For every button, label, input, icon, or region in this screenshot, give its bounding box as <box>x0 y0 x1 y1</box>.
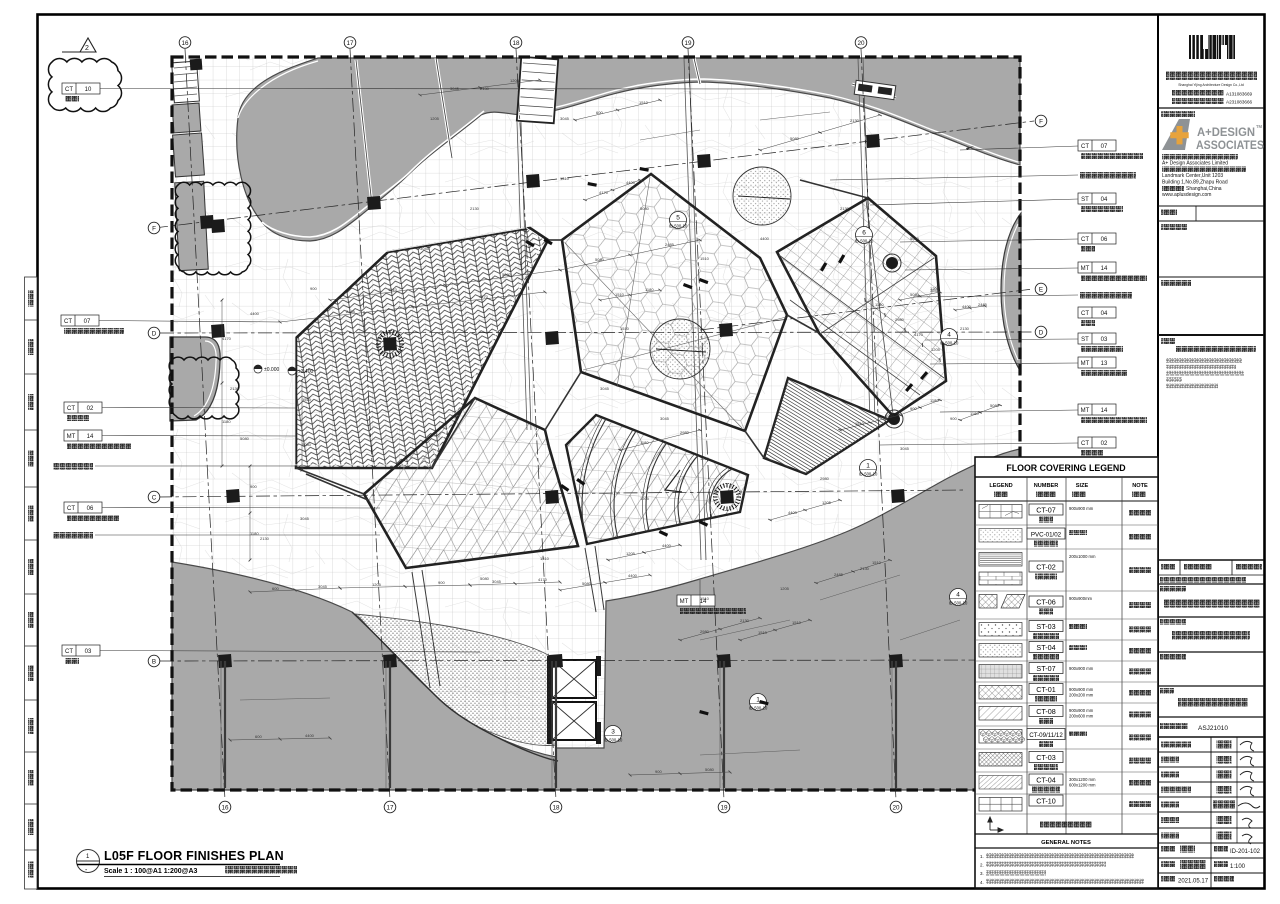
svg-text:CT: CT <box>67 506 75 512</box>
svg-text:CT-01: CT-01 <box>1036 685 1056 694</box>
svg-text:600x1200 mm: 600x1200 mm <box>1069 783 1096 788</box>
svg-text:07: 07 <box>84 319 91 325</box>
svg-text:1180: 1180 <box>222 419 231 424</box>
svg-text:D: D <box>1039 329 1044 336</box>
svg-text:4400: 4400 <box>305 733 315 738</box>
svg-text:16: 16 <box>181 40 189 47</box>
svg-text:1510: 1510 <box>615 292 625 297</box>
svg-text:4400: 4400 <box>788 510 798 515</box>
svg-text:900x900 mm: 900x900 mm <box>1069 708 1094 713</box>
svg-text:900: 900 <box>250 484 257 489</box>
svg-text:2130: 2130 <box>960 326 970 331</box>
svg-text:3045: 3045 <box>420 246 430 251</box>
svg-text:CT: CT <box>65 649 73 655</box>
svg-text:A+ Design Associates Limited: A+ Design Associates Limited <box>1162 161 1228 167</box>
svg-text:4170: 4170 <box>538 577 548 582</box>
svg-text:5080: 5080 <box>502 272 512 277</box>
svg-text:1180: 1180 <box>640 440 649 445</box>
svg-text:3045: 3045 <box>450 86 460 91</box>
svg-text:B: B <box>152 658 156 665</box>
svg-text:2485: 2485 <box>834 572 844 577</box>
svg-text:900x900 mm: 900x900 mm <box>1069 666 1094 671</box>
svg-text:D: D <box>152 330 157 337</box>
svg-text:13: 13 <box>1101 361 1108 367</box>
svg-text:900x900mm: 900x900mm <box>1069 596 1093 601</box>
svg-text:900x900 mm: 900x900 mm <box>1069 506 1094 511</box>
svg-text:1510: 1510 <box>872 560 882 565</box>
svg-text:900x900 mm: 900x900 mm <box>1069 687 1094 692</box>
svg-text:1510: 1510 <box>302 397 312 402</box>
svg-text:3045: 3045 <box>660 416 670 421</box>
svg-text:5080: 5080 <box>480 576 490 581</box>
svg-text:2485: 2485 <box>665 242 675 247</box>
svg-text:3045: 3045 <box>900 446 910 451</box>
svg-text:GENERAL NOTES: GENERAL NOTES <box>1041 840 1091 846</box>
svg-text:5080: 5080 <box>595 257 605 262</box>
svg-text:ID-500-10: ID-500-10 <box>749 706 768 711</box>
svg-text:1205: 1205 <box>510 78 520 83</box>
svg-text:2130: 2130 <box>480 86 490 91</box>
svg-text:900: 900 <box>950 416 957 421</box>
svg-text:1.: 1. <box>980 854 984 859</box>
svg-text:03: 03 <box>1101 337 1108 343</box>
svg-text:1510: 1510 <box>700 456 710 461</box>
svg-text:5080: 5080 <box>705 767 715 772</box>
svg-text:1180: 1180 <box>645 287 654 292</box>
svg-text:4170: 4170 <box>222 336 232 341</box>
svg-text:200x600 mm: 200x600 mm <box>1069 714 1094 719</box>
svg-text:14: 14 <box>1101 408 1108 414</box>
svg-text:1510: 1510 <box>388 287 398 292</box>
svg-text:CT-03: CT-03 <box>1036 753 1056 762</box>
svg-text:CT-08: CT-08 <box>1036 707 1056 716</box>
svg-text:2980: 2980 <box>895 317 905 322</box>
svg-text:5080: 5080 <box>640 206 650 211</box>
svg-text:F: F <box>152 225 156 232</box>
svg-text:A131083669: A131083669 <box>1226 92 1253 97</box>
svg-text:2130: 2130 <box>230 386 240 391</box>
svg-text:5: 5 <box>676 215 680 222</box>
svg-text:1205: 1205 <box>430 116 440 121</box>
svg-text:2130: 2130 <box>850 118 860 123</box>
svg-text:19: 19 <box>720 804 728 811</box>
svg-text:ID-500-10: ID-500-10 <box>940 341 959 346</box>
svg-text:1510: 1510 <box>700 256 710 261</box>
svg-text:NOTE: NOTE <box>1132 483 1148 489</box>
svg-text:1180: 1180 <box>930 398 939 403</box>
svg-text:1510: 1510 <box>792 620 802 625</box>
svg-text:1205: 1205 <box>931 347 941 352</box>
svg-text:Building 1,No.89,Zhapu Road: Building 1,No.89,Zhapu Road <box>1162 179 1228 185</box>
svg-text:1205: 1205 <box>780 586 790 591</box>
svg-text:CT-02: CT-02 <box>1036 563 1056 572</box>
svg-text:4400: 4400 <box>626 180 636 185</box>
svg-text:ST-07: ST-07 <box>1036 664 1055 673</box>
svg-text:LEGEND: LEGEND <box>989 483 1012 489</box>
svg-text:5080: 5080 <box>910 236 920 241</box>
svg-text:20: 20 <box>857 40 865 47</box>
svg-text:6: 6 <box>862 230 866 237</box>
svg-text:1: 1 <box>866 463 870 470</box>
svg-text:Shanghai Yijing Architecture D: Shanghai Yijing Architecture Design Co.,… <box>1178 83 1244 87</box>
svg-text:4: 4 <box>956 592 960 599</box>
svg-text:Landmark Center,Unit 1203: Landmark Center,Unit 1203 <box>1162 173 1223 179</box>
svg-text:06: 06 <box>87 506 94 512</box>
svg-text:04: 04 <box>1101 197 1108 203</box>
svg-text:CT: CT <box>65 87 73 93</box>
svg-text:E: E <box>1039 286 1043 293</box>
svg-text:3045: 3045 <box>300 516 310 521</box>
svg-text:19: 19 <box>684 40 692 47</box>
svg-text:04: 04 <box>1101 311 1108 317</box>
svg-text:4.: 4. <box>980 880 984 885</box>
svg-text:600: 600 <box>255 734 262 739</box>
svg-text:CT-07: CT-07 <box>1036 506 1056 515</box>
svg-text:02: 02 <box>87 406 94 412</box>
svg-text:1205: 1205 <box>640 496 650 501</box>
svg-text:5080: 5080 <box>885 413 895 418</box>
svg-text:20: 20 <box>892 804 900 811</box>
svg-text:1205: 1205 <box>626 551 636 556</box>
svg-text:3045: 3045 <box>318 584 328 589</box>
svg-text:1510: 1510 <box>855 421 865 426</box>
svg-text:200x1000 mm: 200x1000 mm <box>1069 554 1096 559</box>
svg-text:Scale 1 : 100@A1 1:200@A3: Scale 1 : 100@A1 1:200@A3 <box>104 868 198 875</box>
svg-text:ST: ST <box>1081 197 1089 203</box>
svg-text:02: 02 <box>1101 441 1108 447</box>
svg-text:3045: 3045 <box>492 579 502 584</box>
svg-text:3: 3 <box>611 729 615 736</box>
svg-text:900: 900 <box>655 769 662 774</box>
svg-text:1:100: 1:100 <box>1230 864 1246 870</box>
svg-text:4170: 4170 <box>599 190 609 195</box>
svg-text:1180: 1180 <box>875 302 884 307</box>
svg-text:4400: 4400 <box>760 236 770 241</box>
svg-text:TM: TM <box>1256 124 1263 129</box>
svg-text:2021.05.17: 2021.05.17 <box>1178 879 1209 885</box>
svg-text:4400: 4400 <box>662 543 672 548</box>
svg-text:1510: 1510 <box>560 176 570 181</box>
svg-text:300x1200 mm: 300x1200 mm <box>1069 777 1096 782</box>
svg-text:ASJ21010: ASJ21010 <box>1198 725 1228 732</box>
svg-text:1510: 1510 <box>700 596 710 601</box>
svg-text:ID-500-10: ID-500-10 <box>859 472 878 477</box>
svg-text:CT-06: CT-06 <box>1036 598 1056 607</box>
svg-text:03: 03 <box>85 649 92 655</box>
svg-text:CT: CT <box>1081 237 1089 243</box>
svg-text:18: 18 <box>512 40 520 47</box>
svg-text:4400: 4400 <box>962 304 972 309</box>
svg-text:2.: 2. <box>980 863 984 868</box>
svg-text:200x200 mm: 200x200 mm <box>1069 693 1094 698</box>
svg-text:3.: 3. <box>980 871 984 876</box>
svg-text:A231083666: A231083666 <box>1226 100 1253 105</box>
svg-text:5080: 5080 <box>582 581 592 586</box>
svg-text:C: C <box>152 494 157 501</box>
svg-text:1510: 1510 <box>620 326 630 331</box>
svg-text:PVC-01/02: PVC-01/02 <box>1031 532 1062 539</box>
svg-text:3045: 3045 <box>560 116 570 121</box>
svg-text:CT: CT <box>1081 311 1089 317</box>
svg-text:1205: 1205 <box>372 582 382 587</box>
svg-text:SIZE: SIZE <box>1076 483 1089 489</box>
svg-text:18: 18 <box>552 804 560 811</box>
svg-text:10: 10 <box>85 87 92 93</box>
svg-text:±3.400: ±3.400 <box>298 369 313 375</box>
svg-text:2980: 2980 <box>700 629 710 634</box>
svg-text:2130: 2130 <box>470 206 480 211</box>
svg-text:ST: ST <box>1081 337 1089 343</box>
svg-text:±0.000: ±0.000 <box>264 367 279 373</box>
svg-text:ID-500-10: ID-500-10 <box>669 224 688 229</box>
svg-text:5080: 5080 <box>990 403 1000 408</box>
svg-text:1510: 1510 <box>758 630 768 635</box>
svg-text:4: 4 <box>947 332 951 339</box>
svg-text:CT: CT <box>67 406 75 412</box>
svg-text:MT: MT <box>67 434 76 440</box>
svg-text:CT: CT <box>1081 144 1089 150</box>
svg-text:1205: 1205 <box>822 500 832 505</box>
svg-text:5080: 5080 <box>240 436 250 441</box>
svg-text:www.aplusdesign.com: www.aplusdesign.com <box>1162 192 1211 198</box>
svg-text:ID-500-10: ID-500-10 <box>855 239 874 244</box>
svg-text:CT-10: CT-10 <box>1036 797 1056 806</box>
svg-text:17: 17 <box>386 804 394 811</box>
svg-text:4170: 4170 <box>914 332 924 337</box>
svg-text:600: 600 <box>272 586 279 591</box>
svg-text:06: 06 <box>1101 237 1108 243</box>
svg-text:MT: MT <box>680 599 689 605</box>
svg-text:1180: 1180 <box>250 531 259 536</box>
svg-text:3045: 3045 <box>930 288 940 293</box>
svg-text:5080: 5080 <box>302 442 312 447</box>
svg-text:900: 900 <box>310 286 317 291</box>
svg-text:4170: 4170 <box>479 294 489 299</box>
svg-text:MT: MT <box>1081 266 1090 272</box>
svg-text:ID-500-10: ID-500-10 <box>949 601 968 606</box>
svg-text:CT-09/11/12: CT-09/11/12 <box>1029 732 1063 739</box>
svg-text:2130: 2130 <box>260 536 270 541</box>
svg-text:2130: 2130 <box>860 566 870 571</box>
svg-text:1510: 1510 <box>540 556 550 561</box>
svg-text:ST-04: ST-04 <box>1036 643 1055 652</box>
svg-text:NUMBER: NUMBER <box>1034 483 1059 489</box>
svg-text:17: 17 <box>346 40 354 47</box>
svg-text:ID-500-10: ID-500-10 <box>604 738 623 743</box>
svg-text:16: 16 <box>221 804 229 811</box>
svg-text:600: 600 <box>596 110 603 115</box>
svg-text:07: 07 <box>1101 144 1108 150</box>
svg-text:5080: 5080 <box>910 292 920 297</box>
svg-text:2130: 2130 <box>740 618 750 623</box>
svg-text:F: F <box>1039 118 1043 125</box>
svg-text:1510: 1510 <box>639 100 649 105</box>
svg-text:ASSOCIATES: ASSOCIATES <box>1196 138 1264 152</box>
svg-text:A+DESIGN: A+DESIGN <box>1197 125 1255 139</box>
svg-text:900: 900 <box>910 406 917 411</box>
svg-text:2980: 2980 <box>680 430 690 435</box>
svg-text:MT: MT <box>1081 408 1090 414</box>
svg-text:ID-201-102: ID-201-102 <box>1230 849 1261 855</box>
svg-text:4400: 4400 <box>250 311 260 316</box>
svg-text:2980: 2980 <box>820 476 830 481</box>
svg-text:CT-04: CT-04 <box>1036 776 1056 785</box>
svg-text:900: 900 <box>438 580 445 585</box>
svg-text:MT: MT <box>1081 361 1090 367</box>
svg-text:4400: 4400 <box>628 573 638 578</box>
svg-text:2: 2 <box>85 45 89 52</box>
svg-text:1180: 1180 <box>970 411 979 416</box>
svg-text:CT: CT <box>1081 441 1089 447</box>
svg-text:14: 14 <box>87 434 94 440</box>
svg-text:FLOOR COVERING LEGEND: FLOOR COVERING LEGEND <box>1006 463 1125 473</box>
svg-text:5080: 5080 <box>790 136 800 141</box>
svg-text:2130: 2130 <box>840 206 850 211</box>
svg-text:3045: 3045 <box>600 386 610 391</box>
svg-text:L05F FLOOR FINISHES PLAN: L05F FLOOR FINISHES PLAN <box>104 849 284 863</box>
svg-text:2485: 2485 <box>346 309 356 314</box>
svg-text:14: 14 <box>1101 266 1108 272</box>
svg-text:2485: 2485 <box>978 302 988 307</box>
svg-text:ST-03: ST-03 <box>1036 622 1055 631</box>
svg-text:CT: CT <box>64 319 72 325</box>
